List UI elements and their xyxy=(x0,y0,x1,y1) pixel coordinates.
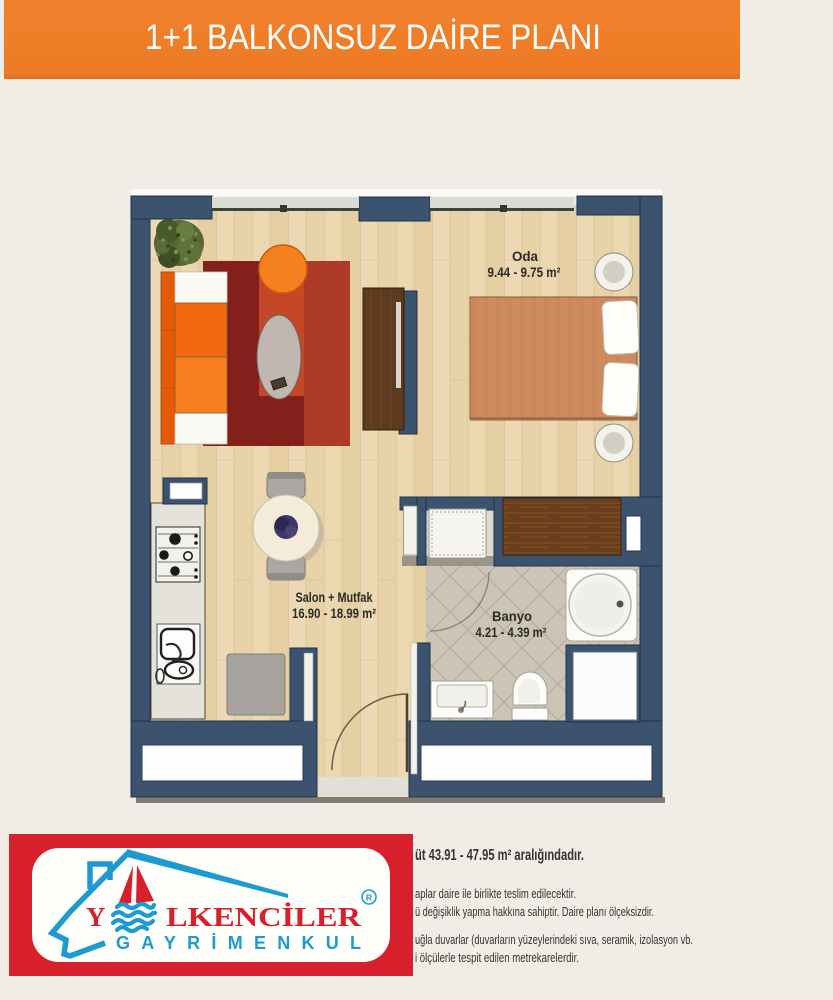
svg-text:Oda: Oda xyxy=(512,248,538,264)
svg-text:uğla duvarlar (duvarların yüze: uğla duvarlar (duvarların yüzeylerindeki… xyxy=(415,932,693,947)
svg-text:üt 43.91 - 47.95 m² aralığında: üt 43.91 - 47.95 m² aralığındadır. xyxy=(415,847,584,864)
svg-text:Salon + Mutfak: Salon + Mutfak xyxy=(296,589,373,605)
svg-text:LKENCİLER: LKENCİLER xyxy=(166,902,362,932)
svg-text:ü değişiklik yapma hakkına sah: ü değişiklik yapma hakkına sahiptir. Dai… xyxy=(415,904,654,919)
svg-text:9.44 - 9.75 m²: 9.44 - 9.75 m² xyxy=(488,264,561,280)
svg-text:Y: Y xyxy=(86,902,106,932)
svg-text:i ölçülerle tespit edilen metr: i ölçülerle tespit edilen metrekarelerdi… xyxy=(415,950,579,965)
svg-text:Banyo: Banyo xyxy=(492,608,532,624)
svg-text:aplar daire ile birlikte tesli: aplar daire ile birlikte teslim edilecek… xyxy=(415,886,576,901)
svg-text:1+1 BALKONSUZ DAİRE PLANI: 1+1 BALKONSUZ DAİRE PLANI xyxy=(145,18,601,57)
svg-text:R: R xyxy=(366,893,372,903)
svg-text:16.90 - 18.99 m²: 16.90 - 18.99 m² xyxy=(292,605,376,621)
svg-text:4.21 - 4.39 m²: 4.21 - 4.39 m² xyxy=(476,624,547,640)
